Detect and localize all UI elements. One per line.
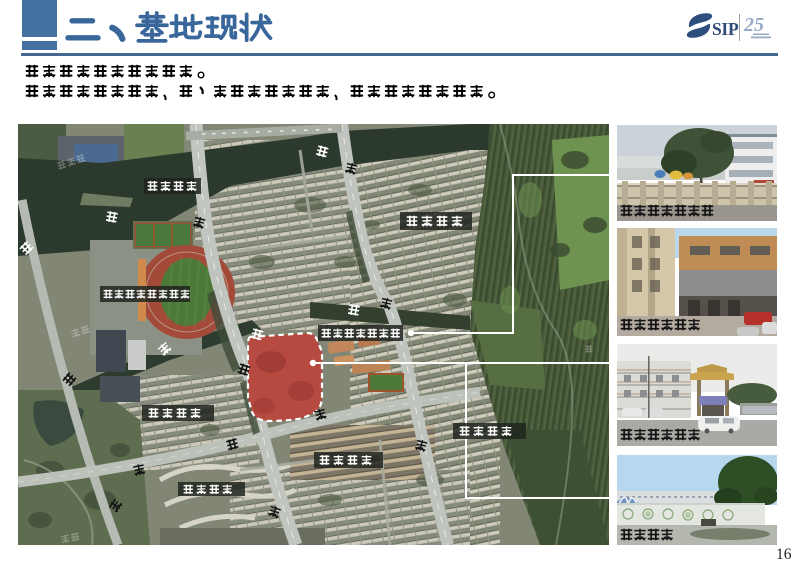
svg-text:SIP: SIP [712,19,739,39]
svg-text:25: 25 [743,14,764,36]
svg-text:16: 16 [776,546,792,563]
